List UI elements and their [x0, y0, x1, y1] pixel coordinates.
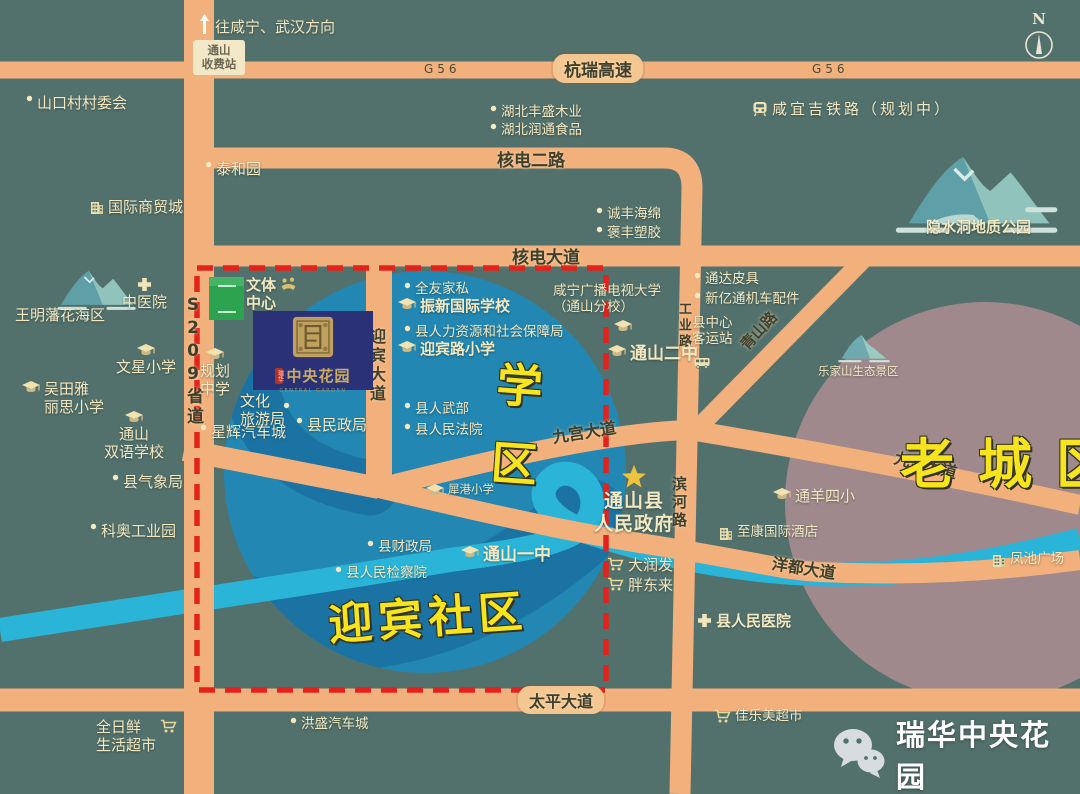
map-label: 中医院 [122, 293, 167, 311]
bldg-icon [719, 525, 733, 540]
bldg-icon [992, 552, 1006, 567]
map-poi: 通羊四小 [773, 487, 855, 505]
map-poi: 乐家山生态景区 [818, 365, 899, 379]
map-poi: 规划中学 [200, 347, 230, 398]
map-label: 县气象局 [123, 473, 183, 491]
map-label: 通山二中 [630, 344, 698, 364]
map-label: 通山一中 [483, 545, 551, 565]
project-subtitle: CENTRAL GARDEN [279, 388, 346, 394]
road-name-label: 核电大道 [512, 243, 580, 268]
road-name-label: 核电二路 [497, 146, 565, 171]
cap-icon [426, 484, 444, 497]
map-label: 乐家山生态景区 [818, 365, 899, 379]
dot-icon [200, 424, 207, 431]
map-poi: 咸宜吉铁路（规划中） [752, 100, 952, 118]
dot-icon [290, 717, 297, 724]
direction-note: 往咸宁、武汉方向 [200, 14, 335, 38]
map-label: 咸宁广播电视大学（通山分校） [553, 283, 661, 315]
map-poi: 通山县人民政府 [594, 464, 674, 536]
map-label: 洪盛汽车城 [301, 716, 369, 732]
map-label: 通山县人民政府 [594, 490, 674, 536]
map-poi: 星辉汽车城 [200, 423, 286, 441]
map-poi: 通山二中 [608, 344, 698, 364]
map-poi: 县人民法院 [404, 422, 483, 438]
map-poi: 洪盛汽车城 [290, 716, 369, 732]
map-poi [283, 401, 290, 409]
cart-icon [607, 557, 624, 572]
dot-icon [205, 161, 212, 168]
map-label: 通山双语学校 [104, 425, 164, 461]
map-poi: 文体中心 [246, 276, 297, 312]
cap-icon [137, 344, 155, 357]
cap-icon [461, 546, 479, 559]
map-poi: 迎宾路小学 [398, 340, 495, 358]
cap-icon [398, 341, 416, 354]
map-poi: 通达皮具 [694, 271, 759, 287]
map-label: 诚丰海绵 [607, 206, 661, 222]
cross-icon [697, 613, 712, 628]
direction-text: 往咸宁、武汉方向 [215, 16, 335, 37]
road-name-label: 工业路 [674, 302, 693, 350]
cart-icon [160, 719, 177, 734]
dot-icon [404, 282, 411, 289]
project-title: 中央花园 [286, 365, 350, 386]
arrow-up-icon [200, 14, 209, 38]
map-label: 县人武部 [415, 401, 469, 417]
map-poi: 中医院 [122, 276, 167, 311]
map-label: 咸宜吉铁路（规划中） [772, 100, 952, 118]
map-poi: 山口村村委会 [26, 94, 127, 112]
compass-label: N [1032, 10, 1046, 28]
cap-icon [125, 411, 143, 424]
zone-old-town: 老城区 [900, 420, 1080, 499]
map-poi: 凤池广场 [992, 551, 1064, 567]
map-poi: 吴田雅丽思小学 [22, 380, 104, 416]
bldg-icon [90, 199, 104, 214]
map-poi: 科奥工业园 [90, 522, 176, 540]
map-poi: 国际商贸城 [90, 198, 183, 216]
dot-icon [90, 523, 97, 530]
map-label: 隐水洞地质公园 [926, 218, 1031, 236]
map-label: 全友家私 [415, 281, 469, 297]
dot-icon [283, 402, 290, 409]
map-poi: 佳乐美超市 [714, 708, 803, 724]
map-poi: 至康国际酒店 [719, 524, 818, 540]
cap-icon [398, 298, 416, 311]
dot-icon [694, 272, 701, 279]
map-poi: 县中心客运站 [692, 315, 733, 347]
map-poi: 诚丰海绵 [596, 206, 661, 222]
map-label: 县人民检察院 [346, 565, 427, 581]
map-poi: 犀港小学 [426, 483, 494, 497]
map-label: 国际商贸城 [108, 198, 183, 216]
cap-icon [773, 488, 791, 501]
map-label: 通达皮具 [705, 271, 759, 287]
map-poi: 通山双语学校 [104, 410, 164, 461]
map-poi: 胖东来 [607, 576, 673, 594]
map-label: 王明藩花海区 [15, 306, 105, 324]
map-label: 县财政局 [378, 539, 432, 555]
sports-field-icon [209, 277, 244, 324]
compass: N [1022, 10, 1056, 66]
map-label: 振新国际学校 [420, 297, 510, 315]
dot-icon [490, 105, 497, 112]
map-label: 文体中心 [246, 276, 276, 312]
compass-icon [1022, 28, 1056, 66]
road-name-label: 杭瑞高速 [553, 54, 643, 83]
cross-icon [137, 277, 152, 292]
project-logo-card: 瑞华 中央花园 CENTRAL GARDEN [253, 311, 373, 390]
star-icon [621, 465, 647, 489]
map-label: 文星小学 [116, 358, 176, 376]
mtn-sm-icon [833, 329, 895, 363]
toll-station-badge: 通山 收费站 [193, 40, 245, 75]
map-label: 县人力资源和社会保障局 [415, 324, 564, 340]
cap-icon [608, 345, 626, 358]
map-label: 湖北润通食品 [501, 122, 582, 138]
map-label: 规划中学 [200, 362, 230, 398]
brand-name: 瑞华中央花园 [896, 712, 1080, 794]
map-poi: 县人武部 [404, 401, 469, 417]
map-poi: 隐水洞地质公园 [926, 218, 1031, 236]
map-label: 星辉汽车城 [211, 423, 286, 441]
map-label: 县中心客运站 [692, 315, 733, 347]
map-poi [614, 319, 632, 333]
map-poi: 王明藩花海区 [15, 306, 105, 324]
dot-icon [596, 207, 603, 214]
map-poi: 湖北丰盛木业 [490, 104, 582, 120]
map-poi: 咸宁广播电视大学（通山分校） [553, 283, 661, 315]
map-poi: 通山一中 [461, 545, 551, 565]
map-label: 通羊四小 [795, 487, 855, 505]
cart-icon [714, 709, 731, 724]
map-label: 褒丰塑胶 [607, 225, 661, 241]
map-poi: 泰和园 [205, 160, 261, 178]
map-poi: 新亿通机车配件 [694, 291, 800, 307]
dot-icon [26, 95, 33, 102]
map-label: 全日鲜生活超市 [96, 718, 156, 754]
map-label: 大润发 [628, 556, 673, 574]
map-label: 迎宾路小学 [420, 340, 495, 358]
dot-icon [367, 540, 374, 547]
dot-icon [404, 402, 411, 409]
brand-wechat-row: 瑞华中央花园 [832, 712, 1080, 794]
road-name-label: G56 [424, 62, 461, 76]
dot-icon [596, 226, 603, 233]
map-poi: 县人民检察院 [335, 565, 427, 581]
road-name-label: G56 [812, 62, 849, 76]
map-poi: 褒丰塑胶 [596, 225, 661, 241]
location-map: 通山 收费站 往咸宁、武汉方向 N [0, 0, 1080, 794]
dot-icon [404, 325, 411, 332]
map-poi: 湖北润通食品 [490, 122, 582, 138]
map-poi: 县财政局 [367, 539, 432, 555]
map-label: 至康国际酒店 [737, 524, 818, 540]
dot-icon [296, 417, 303, 424]
map-label: 科奥工业园 [101, 522, 176, 540]
map-label: 县人民法院 [415, 422, 483, 438]
map-label: 山口村村委会 [37, 94, 127, 112]
map-label: 湖北丰盛木业 [501, 104, 582, 120]
dot-icon [694, 292, 701, 299]
map-label: 县民政局 [307, 416, 367, 434]
cap-icon [22, 381, 40, 394]
map-label: 犀港小学 [448, 483, 494, 497]
map-poi: 振新国际学校 [398, 297, 510, 315]
map-poi [833, 328, 895, 363]
map-poi: 县人力资源和社会保障局 [404, 324, 564, 340]
toll-line1: 通山 [208, 43, 231, 57]
train-icon [752, 101, 768, 117]
map-poi: 全日鲜生活超市 [96, 718, 177, 754]
map-poi: 文星小学 [116, 343, 176, 376]
dot-icon [490, 123, 497, 130]
map-poi: 县人民医院 [697, 612, 791, 630]
map-poi: 县气象局 [112, 473, 183, 491]
road-name-label: 太平大道 [518, 686, 604, 714]
dot-icon [335, 566, 342, 573]
toll-line2: 收费站 [202, 57, 237, 71]
map-label: 胖东来 [628, 576, 673, 594]
fit-icon [280, 277, 297, 292]
project-seal-icon: 瑞华 [275, 368, 283, 384]
wechat-icon [832, 726, 886, 782]
map-poi [694, 356, 710, 369]
map-label: 吴田雅丽思小学 [44, 380, 104, 416]
map-label: 凤池广场 [1010, 551, 1064, 567]
map-label: 泰和园 [216, 160, 261, 178]
bus-icon [694, 357, 710, 369]
cart-icon [607, 577, 624, 592]
map-poi: 大润发 [607, 556, 673, 574]
dot-icon [112, 474, 119, 481]
map-poi: 全友家私 [404, 281, 469, 297]
project-emblem-icon [292, 316, 334, 362]
map-label: 县人民医院 [716, 612, 791, 630]
map-label: 新亿通机车配件 [705, 291, 800, 307]
cap-icon [206, 348, 224, 361]
cap-icon [614, 320, 632, 333]
map-label: 佳乐美超市 [735, 708, 803, 724]
dot-icon [404, 423, 411, 430]
map-poi: 县民政局 [296, 416, 367, 434]
